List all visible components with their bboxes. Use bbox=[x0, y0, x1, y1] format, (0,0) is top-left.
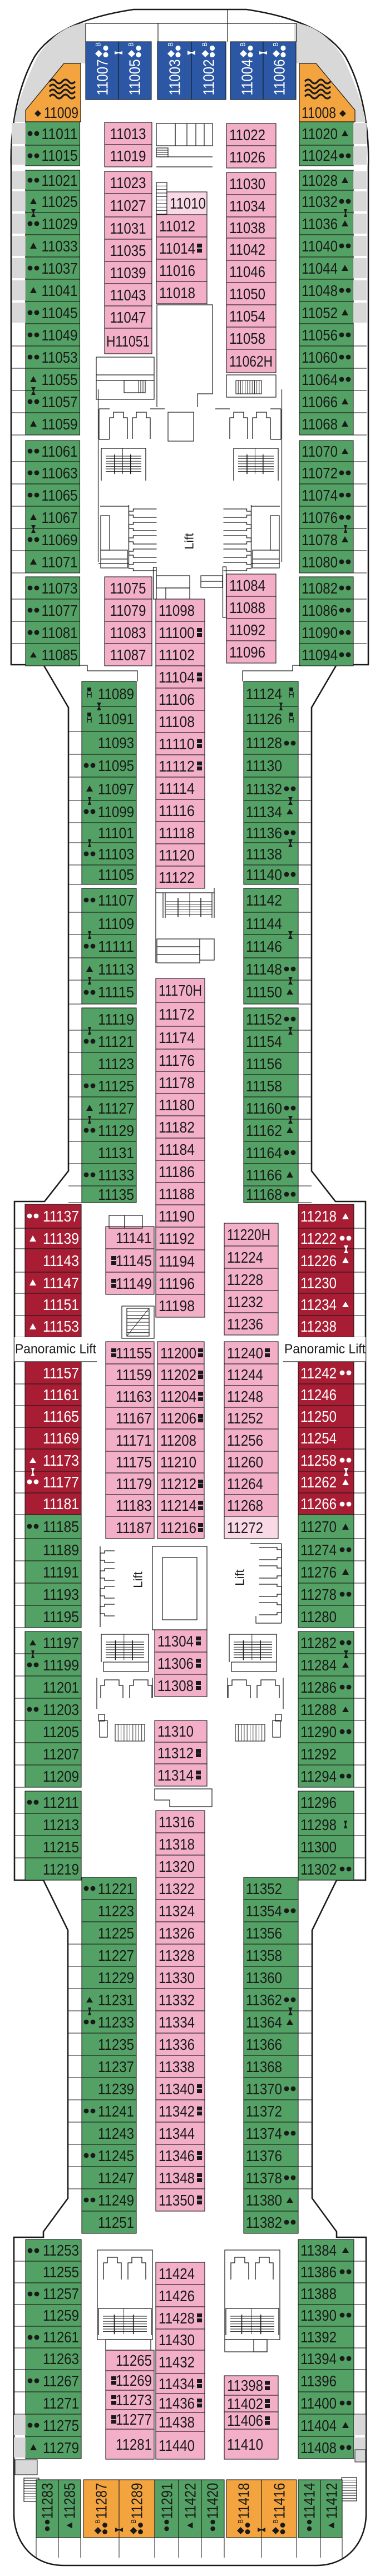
svg-text:B: B bbox=[167, 42, 175, 47]
svg-text:11218: 11218 bbox=[300, 1208, 337, 1225]
svg-text:11239: 11239 bbox=[98, 2080, 134, 2098]
svg-text:11163: 11163 bbox=[116, 1388, 152, 1405]
svg-text:11132: 11132 bbox=[246, 780, 282, 798]
svg-text:11253: 11253 bbox=[43, 2242, 79, 2259]
svg-text:11034: 11034 bbox=[229, 197, 265, 215]
svg-text:11053: 11053 bbox=[42, 349, 78, 366]
svg-text:11283: 11283 bbox=[39, 2483, 56, 2519]
svg-text:11370: 11370 bbox=[246, 2080, 282, 2098]
svg-text:11422: 11422 bbox=[182, 2483, 199, 2519]
svg-text:11368: 11368 bbox=[246, 2058, 282, 2075]
svg-text:11103: 11103 bbox=[98, 846, 134, 863]
svg-text:11144: 11144 bbox=[246, 915, 282, 932]
svg-text:11113: 11113 bbox=[98, 961, 134, 978]
svg-text:11162: 11162 bbox=[246, 1122, 282, 1139]
svg-text:11220H: 11220H bbox=[227, 1226, 270, 1243]
svg-text:Lift: Lift bbox=[131, 1571, 145, 1588]
svg-text:11324: 11324 bbox=[159, 1902, 195, 1920]
svg-text:B: B bbox=[239, 42, 247, 47]
svg-text:11013: 11013 bbox=[110, 125, 146, 142]
svg-text:11176: 11176 bbox=[159, 1052, 195, 1069]
svg-text:11287: 11287 bbox=[93, 2483, 110, 2519]
svg-text:11199: 11199 bbox=[43, 1657, 79, 1674]
svg-text:11064: 11064 bbox=[302, 371, 338, 388]
svg-text:H: H bbox=[288, 715, 294, 725]
svg-text:11224: 11224 bbox=[227, 1249, 263, 1266]
svg-text:11205: 11205 bbox=[43, 1723, 79, 1741]
svg-text:11240: 11240 bbox=[227, 1344, 263, 1362]
svg-text:11406: 11406 bbox=[227, 2412, 263, 2429]
svg-text:11250: 11250 bbox=[300, 1408, 337, 1425]
svg-text:11418: 11418 bbox=[235, 2483, 253, 2519]
svg-text:11226: 11226 bbox=[300, 1252, 337, 1269]
svg-text:11197: 11197 bbox=[43, 1634, 79, 1652]
svg-text:11360: 11360 bbox=[246, 1969, 282, 1986]
svg-text:11006: 11006 bbox=[271, 60, 288, 96]
svg-text:H: H bbox=[288, 690, 294, 700]
svg-text:11254: 11254 bbox=[300, 1430, 337, 1447]
svg-text:11178: 11178 bbox=[159, 1074, 195, 1091]
svg-text:11196: 11196 bbox=[159, 1275, 195, 1292]
svg-text:11111: 11111 bbox=[98, 938, 134, 955]
svg-text:B: B bbox=[272, 2519, 280, 2524]
svg-text:11129: 11129 bbox=[98, 1122, 134, 1139]
svg-text:11192: 11192 bbox=[159, 1230, 195, 1247]
svg-text:11352: 11352 bbox=[246, 1880, 282, 1897]
svg-text:B: B bbox=[95, 42, 102, 47]
svg-text:11042: 11042 bbox=[229, 241, 265, 258]
svg-text:11262: 11262 bbox=[300, 1474, 337, 1491]
svg-text:11101: 11101 bbox=[98, 824, 134, 842]
svg-text:11107: 11107 bbox=[98, 892, 134, 909]
svg-text:11063: 11063 bbox=[42, 464, 78, 482]
svg-text:11185: 11185 bbox=[43, 1518, 79, 1535]
svg-text:11261: 11261 bbox=[43, 2328, 79, 2346]
svg-text:11286: 11286 bbox=[300, 1679, 337, 1696]
svg-text:11438: 11438 bbox=[159, 2414, 195, 2431]
svg-text:11404: 11404 bbox=[300, 2417, 337, 2434]
svg-text:11010: 11010 bbox=[170, 195, 206, 212]
svg-text:11171: 11171 bbox=[116, 1432, 152, 1449]
svg-text:11069: 11069 bbox=[42, 531, 78, 548]
svg-text:11015: 11015 bbox=[42, 147, 78, 164]
svg-text:11312: 11312 bbox=[157, 1744, 194, 1762]
svg-text:11082: 11082 bbox=[302, 580, 338, 597]
svg-text:11277: 11277 bbox=[116, 2411, 152, 2428]
svg-text:11175: 11175 bbox=[116, 1453, 152, 1471]
svg-text:11007: 11007 bbox=[94, 60, 111, 96]
svg-text:11288: 11288 bbox=[300, 1701, 337, 1718]
svg-text:11116: 11116 bbox=[159, 802, 195, 819]
svg-text:11134: 11134 bbox=[246, 803, 282, 820]
svg-text:11026: 11026 bbox=[229, 149, 265, 166]
svg-text:11400: 11400 bbox=[300, 2395, 337, 2412]
svg-text:11014: 11014 bbox=[159, 240, 195, 257]
svg-text:11149: 11149 bbox=[116, 1275, 152, 1292]
svg-text:11169: 11169 bbox=[43, 1430, 79, 1447]
svg-text:11020: 11020 bbox=[302, 125, 338, 142]
svg-text:11150: 11150 bbox=[246, 983, 282, 1001]
svg-text:11019: 11019 bbox=[110, 147, 146, 165]
svg-text:11155: 11155 bbox=[116, 1344, 152, 1362]
svg-text:11402: 11402 bbox=[227, 2395, 263, 2412]
svg-text:11050: 11050 bbox=[229, 285, 265, 303]
svg-text:11164: 11164 bbox=[246, 1144, 282, 1161]
svg-text:11310: 11310 bbox=[157, 1723, 194, 1740]
svg-text:B: B bbox=[272, 42, 280, 47]
svg-text:11251: 11251 bbox=[98, 2214, 134, 2231]
svg-text:11376: 11376 bbox=[246, 2147, 282, 2164]
svg-text:11284: 11284 bbox=[300, 1657, 337, 1674]
svg-text:11095: 11095 bbox=[98, 757, 134, 774]
svg-text:11242: 11242 bbox=[300, 1364, 337, 1382]
svg-text:11054: 11054 bbox=[229, 308, 265, 325]
svg-text:11072: 11072 bbox=[302, 464, 338, 482]
svg-text:11179: 11179 bbox=[116, 1475, 152, 1492]
svg-text:11420: 11420 bbox=[204, 2483, 221, 2519]
svg-text:11338: 11338 bbox=[159, 2058, 195, 2075]
svg-text:11235: 11235 bbox=[98, 2036, 134, 2053]
svg-text:11249: 11249 bbox=[98, 2192, 134, 2209]
svg-text:11328: 11328 bbox=[159, 1947, 195, 1964]
svg-text:11318: 11318 bbox=[159, 1836, 195, 1853]
svg-text:11346: 11346 bbox=[159, 2147, 195, 2164]
svg-text:11227: 11227 bbox=[98, 1947, 134, 1964]
svg-text:11236: 11236 bbox=[227, 1316, 263, 1333]
svg-text:11408: 11408 bbox=[300, 2439, 337, 2456]
svg-text:11364: 11364 bbox=[246, 2014, 282, 2031]
svg-text:11188: 11188 bbox=[159, 1185, 195, 1203]
svg-text:11424: 11424 bbox=[159, 2265, 195, 2282]
svg-text:11110: 11110 bbox=[159, 735, 195, 753]
svg-text:11342: 11342 bbox=[159, 2103, 195, 2120]
svg-text:11209: 11209 bbox=[43, 1768, 79, 1785]
svg-text:11183: 11183 bbox=[116, 1497, 152, 1514]
svg-text:B: B bbox=[130, 2519, 137, 2524]
svg-text:11336: 11336 bbox=[159, 2036, 195, 2053]
svg-text:11275: 11275 bbox=[43, 2417, 79, 2434]
svg-text:11430: 11430 bbox=[159, 2331, 195, 2348]
svg-text:11378: 11378 bbox=[246, 2169, 282, 2187]
svg-text:11041: 11041 bbox=[42, 282, 78, 299]
svg-text:11173: 11173 bbox=[43, 1452, 79, 1469]
svg-text:11189: 11189 bbox=[43, 1541, 79, 1559]
svg-text:11278: 11278 bbox=[300, 1586, 337, 1603]
svg-text:11302: 11302 bbox=[300, 1861, 337, 1878]
svg-text:11374: 11374 bbox=[246, 2125, 282, 2142]
svg-text:11165: 11165 bbox=[43, 1408, 79, 1425]
svg-text:11177: 11177 bbox=[43, 1474, 79, 1491]
svg-text:11194: 11194 bbox=[159, 1253, 195, 1270]
svg-text:11109: 11109 bbox=[98, 915, 134, 932]
svg-text:11416: 11416 bbox=[271, 2483, 288, 2519]
svg-text:11022: 11022 bbox=[229, 126, 265, 144]
svg-text:11263: 11263 bbox=[43, 2350, 79, 2367]
svg-text:11382: 11382 bbox=[246, 2214, 282, 2231]
svg-text:11414: 11414 bbox=[301, 2483, 318, 2519]
svg-text:11048: 11048 bbox=[302, 282, 338, 299]
svg-text:11290: 11290 bbox=[300, 1723, 337, 1741]
svg-text:11142: 11142 bbox=[246, 892, 282, 909]
svg-text:11049: 11049 bbox=[42, 327, 78, 344]
svg-text:Panoramic Lift: Panoramic Lift bbox=[284, 1342, 366, 1357]
svg-text:11291: 11291 bbox=[159, 2483, 176, 2519]
svg-text:11156: 11156 bbox=[246, 1055, 282, 1072]
svg-text:11230: 11230 bbox=[300, 1274, 337, 1292]
svg-text:11032: 11032 bbox=[302, 193, 338, 210]
svg-text:11061: 11061 bbox=[42, 443, 78, 460]
svg-text:11326: 11326 bbox=[159, 1925, 195, 1942]
svg-text:11348: 11348 bbox=[159, 2169, 195, 2187]
svg-text:11114: 11114 bbox=[159, 780, 195, 797]
svg-text:11308: 11308 bbox=[157, 1677, 194, 1694]
svg-text:11216: 11216 bbox=[160, 1519, 196, 1536]
svg-text:11428: 11428 bbox=[159, 2310, 195, 2327]
svg-text:11104: 11104 bbox=[159, 669, 195, 686]
svg-text:11392: 11392 bbox=[300, 2328, 337, 2346]
svg-text:11172: 11172 bbox=[159, 1006, 195, 1023]
svg-text:11066: 11066 bbox=[302, 393, 338, 411]
svg-text:B: B bbox=[201, 42, 209, 47]
svg-text:11005: 11005 bbox=[126, 60, 144, 96]
svg-text:11012: 11012 bbox=[159, 217, 195, 235]
svg-text:11124: 11124 bbox=[246, 685, 282, 703]
svg-text:11058: 11058 bbox=[229, 330, 265, 347]
svg-text:11213: 11213 bbox=[43, 1816, 79, 1833]
svg-text:11294: 11294 bbox=[300, 1768, 337, 1785]
svg-text:11098: 11098 bbox=[159, 602, 195, 619]
svg-text:11037: 11037 bbox=[42, 260, 78, 277]
svg-text:11146: 11146 bbox=[246, 938, 282, 955]
svg-text:11210: 11210 bbox=[160, 1453, 196, 1471]
svg-text:11332: 11332 bbox=[159, 1991, 195, 2009]
svg-text:11073: 11073 bbox=[42, 580, 78, 597]
svg-text:11296: 11296 bbox=[300, 1794, 337, 1811]
svg-text:11344: 11344 bbox=[159, 2125, 195, 2142]
svg-text:11062H: 11062H bbox=[229, 353, 273, 370]
svg-text:11028: 11028 bbox=[302, 172, 338, 189]
svg-text:11158: 11158 bbox=[246, 1077, 282, 1095]
svg-text:11068: 11068 bbox=[302, 416, 338, 433]
svg-text:11366: 11366 bbox=[246, 2036, 282, 2053]
svg-text:11298: 11298 bbox=[300, 1816, 337, 1833]
svg-text:11274: 11274 bbox=[300, 1541, 337, 1559]
svg-text:11133: 11133 bbox=[98, 1166, 134, 1184]
svg-text:11280: 11280 bbox=[300, 1608, 337, 1625]
svg-text:11207: 11207 bbox=[43, 1746, 79, 1763]
svg-text:11212: 11212 bbox=[160, 1475, 196, 1492]
svg-text:11208: 11208 bbox=[160, 1432, 196, 1449]
svg-text:11112: 11112 bbox=[159, 758, 195, 775]
svg-text:11223: 11223 bbox=[98, 1902, 134, 1920]
svg-text:11128: 11128 bbox=[246, 734, 282, 751]
svg-text:11145: 11145 bbox=[116, 1252, 152, 1269]
svg-text:11245: 11245 bbox=[98, 2147, 134, 2164]
svg-text:11035: 11035 bbox=[110, 242, 146, 259]
svg-text:11237: 11237 bbox=[98, 2058, 134, 2075]
svg-text:11316: 11316 bbox=[159, 1813, 195, 1831]
svg-text:11008: 11008 bbox=[302, 104, 336, 121]
svg-text:11077: 11077 bbox=[42, 602, 78, 619]
svg-text:11135: 11135 bbox=[98, 1186, 134, 1203]
svg-text:11388: 11388 bbox=[300, 2285, 337, 2302]
svg-text:11195: 11195 bbox=[43, 1608, 79, 1625]
svg-text:11147: 11147 bbox=[43, 1274, 79, 1292]
svg-text:11030: 11030 bbox=[229, 175, 265, 192]
svg-text:11202: 11202 bbox=[160, 1366, 196, 1383]
svg-text:11267: 11267 bbox=[43, 2372, 79, 2390]
svg-text:11247: 11247 bbox=[98, 2169, 134, 2187]
svg-text:11160: 11160 bbox=[246, 1100, 282, 1117]
svg-text:11122: 11122 bbox=[159, 869, 195, 886]
svg-text:11260: 11260 bbox=[227, 1453, 263, 1471]
svg-text:11234: 11234 bbox=[300, 1296, 337, 1313]
svg-text:11076: 11076 bbox=[302, 509, 338, 526]
svg-text:11088: 11088 bbox=[229, 599, 265, 616]
svg-text:11092: 11092 bbox=[229, 621, 265, 639]
svg-text:11322: 11322 bbox=[159, 1880, 195, 1897]
svg-text:11394: 11394 bbox=[300, 2350, 337, 2367]
svg-text:11221: 11221 bbox=[98, 1880, 134, 1897]
svg-text:11222: 11222 bbox=[300, 1230, 337, 1247]
svg-text:11081: 11081 bbox=[42, 624, 78, 641]
svg-text:11434: 11434 bbox=[159, 2375, 195, 2392]
svg-text:11398: 11398 bbox=[227, 2377, 263, 2394]
svg-text:11264: 11264 bbox=[227, 1475, 263, 1492]
svg-text:11154: 11154 bbox=[246, 1033, 282, 1050]
svg-text:11257: 11257 bbox=[43, 2285, 79, 2302]
svg-text:11289: 11289 bbox=[129, 2483, 146, 2519]
svg-text:11016: 11016 bbox=[159, 262, 195, 279]
svg-text:11233: 11233 bbox=[98, 2014, 134, 2031]
svg-text:11138: 11138 bbox=[246, 846, 282, 863]
svg-text:11127: 11127 bbox=[98, 1100, 134, 1117]
svg-text:11148: 11148 bbox=[246, 961, 282, 978]
svg-text:11268: 11268 bbox=[227, 1497, 263, 1514]
svg-text:11304: 11304 bbox=[157, 1633, 194, 1650]
svg-text:11426: 11426 bbox=[159, 2287, 195, 2305]
svg-text:11412: 11412 bbox=[323, 2483, 340, 2519]
svg-text:11241: 11241 bbox=[98, 2103, 134, 2120]
svg-text:11271: 11271 bbox=[43, 2395, 79, 2412]
svg-text:11096: 11096 bbox=[229, 644, 265, 661]
svg-text:11102: 11102 bbox=[159, 646, 195, 664]
svg-text:11039: 11039 bbox=[110, 264, 146, 281]
svg-text:Lift: Lift bbox=[233, 1569, 247, 1585]
svg-text:Lift: Lift bbox=[182, 533, 196, 549]
svg-text:11386: 11386 bbox=[300, 2263, 337, 2281]
svg-text:11091: 11091 bbox=[98, 710, 134, 728]
svg-text:11300: 11300 bbox=[300, 1838, 337, 1856]
svg-text:11320: 11320 bbox=[159, 1858, 195, 1875]
svg-text:11157: 11157 bbox=[43, 1364, 79, 1382]
svg-text:11203: 11203 bbox=[43, 1701, 79, 1718]
svg-text:11219: 11219 bbox=[43, 1861, 79, 1878]
svg-text:11079: 11079 bbox=[110, 602, 146, 619]
svg-text:11238: 11238 bbox=[300, 1318, 337, 1335]
svg-text:11083: 11083 bbox=[110, 624, 146, 641]
svg-text:11029: 11029 bbox=[42, 215, 78, 233]
svg-text:11270: 11270 bbox=[300, 1518, 337, 1535]
svg-text:11340: 11340 bbox=[159, 2080, 195, 2098]
svg-text:11259: 11259 bbox=[43, 2307, 79, 2324]
svg-text:11093: 11093 bbox=[98, 734, 134, 751]
svg-text:11246: 11246 bbox=[300, 1386, 337, 1403]
svg-text:H11051: H11051 bbox=[106, 333, 150, 350]
svg-text:11036: 11036 bbox=[302, 215, 338, 233]
svg-text:11255: 11255 bbox=[43, 2263, 79, 2281]
svg-text:Panoramic Lift: Panoramic Lift bbox=[15, 1342, 96, 1357]
svg-text:11279: 11279 bbox=[43, 2439, 79, 2456]
svg-text:11046: 11046 bbox=[229, 263, 265, 280]
svg-text:11256: 11256 bbox=[227, 1432, 263, 1449]
svg-text:11292: 11292 bbox=[300, 1746, 337, 1763]
svg-text:11206: 11206 bbox=[160, 1410, 196, 1427]
svg-text:11334: 11334 bbox=[159, 2014, 195, 2031]
svg-text:11372: 11372 bbox=[246, 2103, 282, 2120]
svg-text:11118: 11118 bbox=[159, 824, 195, 842]
svg-text:11087: 11087 bbox=[110, 646, 146, 664]
svg-text:11167: 11167 bbox=[116, 1410, 152, 1427]
svg-text:11120: 11120 bbox=[159, 847, 195, 864]
svg-text:11180: 11180 bbox=[159, 1096, 195, 1114]
svg-text:11084: 11084 bbox=[229, 577, 265, 594]
svg-text:11021: 11021 bbox=[42, 172, 78, 189]
svg-text:11159: 11159 bbox=[116, 1366, 152, 1383]
svg-text:11358: 11358 bbox=[246, 1947, 282, 1964]
svg-text:11152: 11152 bbox=[246, 1011, 282, 1028]
svg-text:11003: 11003 bbox=[166, 60, 184, 96]
svg-text:11161: 11161 bbox=[43, 1386, 79, 1403]
svg-text:11248: 11248 bbox=[227, 1388, 263, 1405]
svg-text:11190: 11190 bbox=[159, 1208, 195, 1225]
svg-text:11070: 11070 bbox=[302, 443, 338, 460]
svg-text:11141: 11141 bbox=[116, 1229, 152, 1247]
svg-text:11055: 11055 bbox=[42, 371, 78, 388]
svg-text:11024: 11024 bbox=[302, 147, 338, 164]
svg-text:11027: 11027 bbox=[110, 197, 146, 214]
svg-text:11181: 11181 bbox=[43, 1495, 79, 1512]
svg-text:11187: 11187 bbox=[116, 1519, 152, 1536]
svg-text:11282: 11282 bbox=[300, 1634, 337, 1652]
svg-text:11356: 11356 bbox=[246, 1925, 282, 1942]
svg-text:11214: 11214 bbox=[160, 1497, 196, 1514]
svg-text:11060: 11060 bbox=[302, 349, 338, 366]
svg-text:11225: 11225 bbox=[98, 1925, 134, 1942]
svg-text:11243: 11243 bbox=[98, 2125, 134, 2142]
svg-text:11396: 11396 bbox=[300, 2372, 337, 2390]
svg-text:11229: 11229 bbox=[98, 1969, 134, 1986]
svg-text:11170H: 11170H bbox=[159, 982, 202, 999]
svg-text:11074: 11074 bbox=[302, 487, 338, 504]
svg-text:11201: 11201 bbox=[43, 1679, 79, 1696]
svg-text:11085: 11085 bbox=[42, 646, 78, 664]
svg-text:11065: 11065 bbox=[42, 487, 78, 504]
svg-text:11075: 11075 bbox=[110, 580, 146, 597]
svg-text:11130: 11130 bbox=[246, 757, 282, 774]
svg-text:11125: 11125 bbox=[98, 1077, 134, 1095]
svg-text:11067: 11067 bbox=[42, 509, 78, 526]
svg-text:11121: 11121 bbox=[98, 1033, 134, 1050]
svg-text:11023: 11023 bbox=[110, 174, 146, 191]
svg-text:11384: 11384 bbox=[300, 2242, 337, 2259]
svg-text:11191: 11191 bbox=[43, 1564, 79, 1581]
svg-text:11071: 11071 bbox=[42, 553, 78, 571]
svg-text:11119: 11119 bbox=[98, 1011, 134, 1028]
svg-text:11115: 11115 bbox=[98, 983, 134, 1001]
svg-text:11390: 11390 bbox=[300, 2307, 337, 2324]
svg-text:11139: 11139 bbox=[43, 1230, 79, 1247]
